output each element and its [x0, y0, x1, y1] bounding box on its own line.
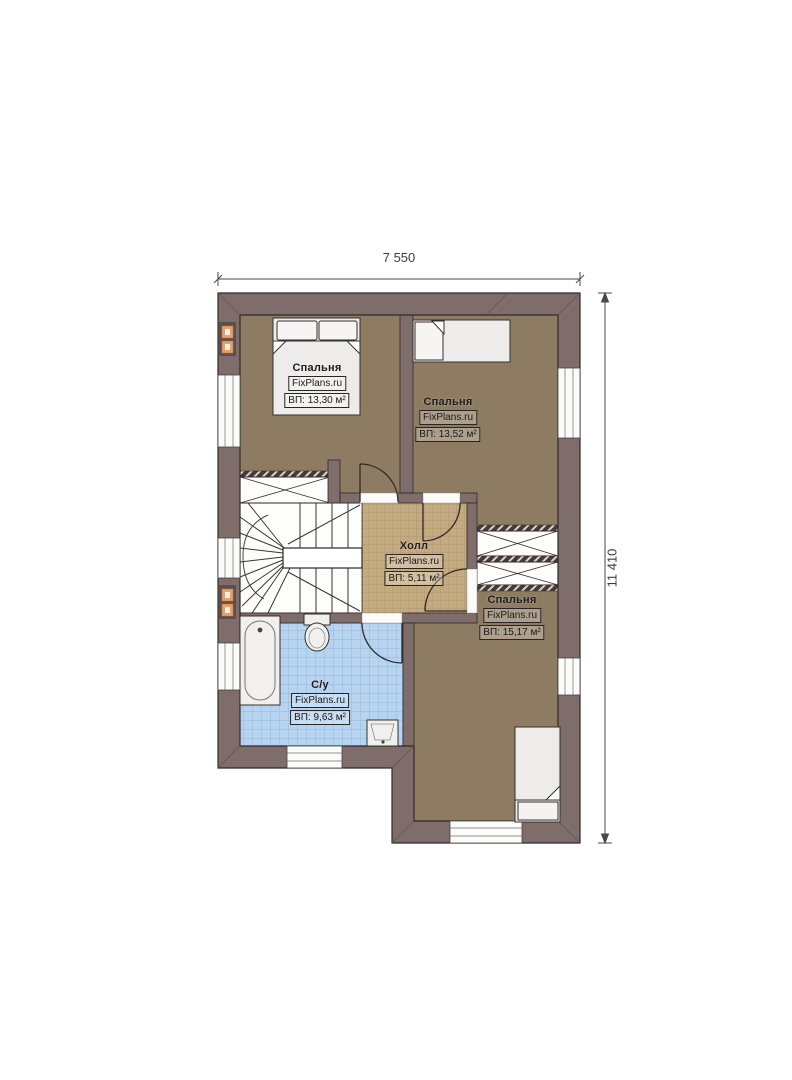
room-area: ВП: 13,52 м²	[415, 427, 480, 442]
floor-plan-page: 7 550 11 410 Спальня FixPlans.ru ВП: 13,…	[0, 0, 792, 1080]
window	[287, 746, 342, 768]
closet-near-stairs	[240, 477, 330, 503]
wardrobe-wall-hatch	[477, 525, 558, 531]
room-label-hall: Холл FixPlans.ru ВП: 5,11 м²	[384, 540, 443, 586]
room-name: Спальня	[293, 362, 342, 374]
wardrobe-upper	[477, 531, 558, 556]
wardrobe-lower	[477, 562, 558, 585]
wall-bed1-bed2	[400, 315, 413, 493]
watermark-fixplans: FixPlans.ru	[291, 693, 349, 708]
watermark-fixplans: FixPlans.ru	[385, 554, 443, 569]
room-label-bedroom-3: Спальня FixPlans.ru ВП: 15,17 м²	[479, 594, 544, 640]
wall-hall-right	[467, 503, 477, 569]
wardrobe-wall-hatch	[477, 556, 558, 562]
room-name: Спальня	[424, 396, 473, 408]
window	[450, 821, 522, 843]
window	[218, 643, 240, 690]
dimension-line-top	[214, 272, 584, 286]
window	[558, 368, 580, 438]
window	[558, 658, 580, 695]
sink-icon	[367, 720, 398, 746]
wardrobe-wall-hatch	[477, 585, 558, 591]
room-area: ВП: 5,11 м²	[384, 571, 443, 586]
single-bed-icon	[413, 320, 510, 362]
dimension-label-width: 7 550	[383, 250, 416, 265]
room-name: С/у	[311, 679, 329, 691]
wall-stub	[328, 460, 340, 503]
room-area: ВП: 15,17 м²	[479, 625, 544, 640]
window	[218, 538, 240, 578]
single-bed-icon	[515, 727, 560, 822]
vent-block-icon	[219, 585, 236, 619]
room-area: ВП: 13,30 м²	[284, 393, 349, 408]
room-label-bathroom: С/у FixPlans.ru ВП: 9,63 м²	[290, 679, 350, 725]
toilet-icon	[304, 614, 330, 651]
room-name: Спальня	[488, 594, 537, 606]
watermark-fixplans: FixPlans.ru	[419, 410, 477, 425]
room-label-bedroom-1: Спальня FixPlans.ru ВП: 13,30 м²	[284, 362, 349, 408]
wall-bathroom-right	[403, 623, 414, 746]
room-area: ВП: 9,63 м²	[290, 710, 350, 725]
room-label-bedroom-2: Спальня FixPlans.ru ВП: 13,52 м²	[415, 396, 480, 442]
window	[218, 375, 240, 447]
stair-rail	[283, 548, 362, 568]
wardrobe-wall-hatch	[240, 471, 330, 477]
room-name: Холл	[400, 540, 428, 552]
vent-block-icon	[219, 322, 236, 356]
dimension-label-height: 11 410	[605, 549, 620, 588]
bathtub-icon	[240, 616, 280, 705]
watermark-fixplans: FixPlans.ru	[288, 376, 346, 391]
watermark-fixplans: FixPlans.ru	[483, 608, 541, 623]
